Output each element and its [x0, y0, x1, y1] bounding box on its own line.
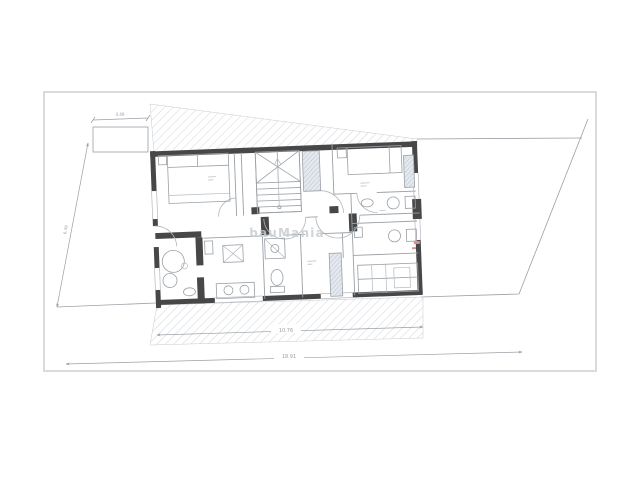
floor-plan-page: 4.49 6.39 10.76 18.91 — [0, 0, 640, 480]
site-width-dimension: 18.91 — [66, 350, 522, 364]
wc-upper-right — [387, 197, 399, 209]
site-left-boundary-dimension — [57, 143, 88, 307]
kitchen-counter — [358, 263, 419, 293]
site-bottom-left-line — [57, 303, 156, 307]
basin-left — [183, 288, 195, 296]
utility-room-fixtures — [205, 239, 255, 299]
site-left-dimension: 6.39 — [62, 224, 69, 234]
wc-left — [163, 273, 178, 288]
svg-text:10.76: 10.76 — [279, 328, 293, 334]
floor-plan-drawing: 4.49 6.39 10.76 18.91 — [0, 0, 640, 480]
bathtub-round — [162, 250, 185, 273]
bedroom2-furniture — [337, 145, 415, 190]
bathroom-left-fixtures — [162, 250, 196, 297]
watermark-text: bauMania — [249, 226, 325, 240]
svg-text:18.91: 18.91 — [282, 354, 296, 360]
bathroom-right-lower — [354, 225, 417, 243]
bed-left — [167, 153, 230, 203]
radiator-column — [329, 253, 343, 296]
bathroom-right-upper — [361, 196, 415, 210]
bed-right — [347, 146, 402, 175]
wc-lower-right — [388, 230, 400, 242]
garage-outline — [93, 127, 148, 152]
bedroom1-door-arc — [218, 198, 237, 217]
bedroom2-door-arc — [357, 193, 378, 214]
building — [150, 141, 425, 308]
wc-middle — [271, 269, 284, 285]
basin-upper-right — [361, 199, 373, 207]
garage-width-dimension: 4.49 — [116, 112, 125, 117]
shaft-column — [302, 151, 321, 192]
staircase — [255, 150, 301, 213]
bedroom1-furniture — [158, 153, 230, 204]
shower-room-fixtures — [265, 238, 287, 293]
nightstand-left — [158, 156, 166, 165]
exterior-walls — [150, 141, 425, 308]
bottom-hatch-strip — [150, 297, 423, 345]
site-right-boundary — [421, 119, 588, 297]
site-top-right-line — [417, 138, 582, 139]
